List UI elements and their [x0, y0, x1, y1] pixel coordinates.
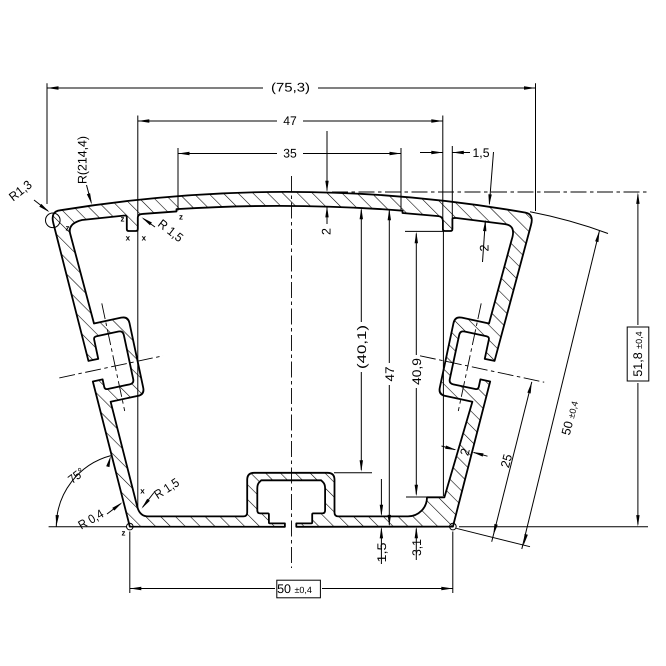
- svg-text:z: z: [66, 224, 70, 233]
- svg-text:1,5: 1,5: [473, 146, 490, 160]
- svg-text:47: 47: [283, 114, 297, 128]
- svg-text:1,5: 1,5: [375, 542, 389, 562]
- svg-text:x: x: [126, 234, 131, 243]
- svg-text:x: x: [142, 234, 147, 243]
- svg-text:z: z: [179, 213, 183, 222]
- svg-text:z: z: [121, 215, 125, 224]
- svg-text:R(214,4): R(214,4): [76, 136, 90, 184]
- svg-text:50 ±0,4: 50 ±0,4: [277, 582, 312, 596]
- svg-text:2: 2: [320, 228, 334, 235]
- svg-text:(75,3): (75,3): [271, 81, 310, 95]
- svg-text:3,1: 3,1: [410, 539, 424, 556]
- svg-text:47: 47: [383, 366, 397, 381]
- svg-text:40,9: 40,9: [410, 358, 424, 385]
- svg-text:2: 2: [478, 244, 492, 251]
- svg-text:35: 35: [283, 147, 297, 161]
- svg-text:(40,1): (40,1): [355, 325, 369, 369]
- svg-text:51,8 ±0,4: 51,8 ±0,4: [631, 331, 645, 376]
- svg-text:x: x: [140, 487, 145, 496]
- svg-text:z: z: [122, 529, 126, 538]
